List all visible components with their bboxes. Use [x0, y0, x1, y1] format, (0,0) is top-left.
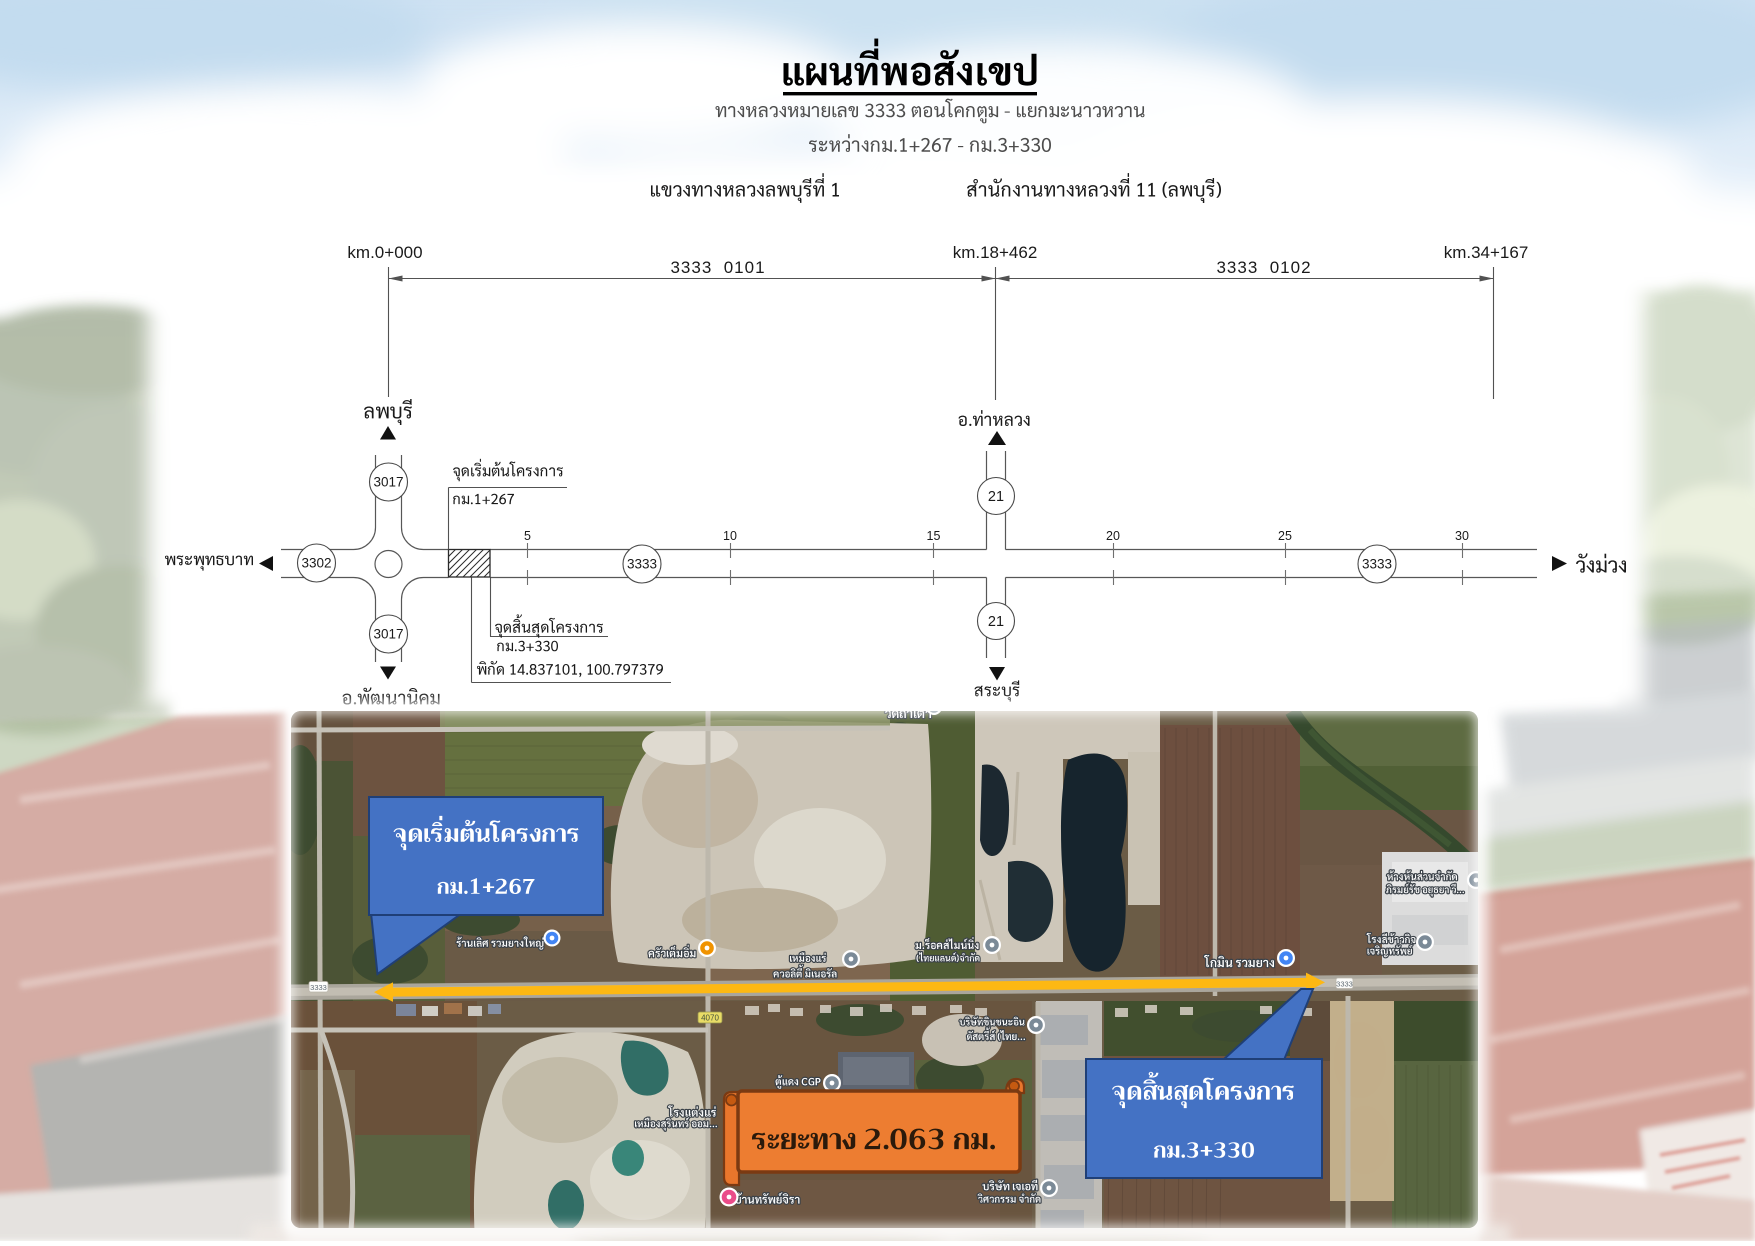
- svg-text:21: 21: [988, 614, 1004, 630]
- svg-text:5: 5: [524, 529, 531, 543]
- svg-text:3333 0102: 3333 0102: [1216, 258, 1311, 277]
- svg-text:3333: 3333: [310, 983, 327, 992]
- svg-text:3302: 3302: [301, 556, 331, 571]
- svg-text:km.0+000: km.0+000: [347, 243, 422, 262]
- svg-text:15: 15: [927, 529, 941, 543]
- svg-text:30: 30: [1455, 529, 1469, 543]
- svg-text:3333 0101: 3333 0101: [670, 258, 765, 277]
- svg-text:3017: 3017: [373, 475, 403, 490]
- svg-text:3017: 3017: [373, 627, 403, 642]
- svg-text:21: 21: [988, 489, 1004, 505]
- svg-text:10: 10: [723, 529, 737, 543]
- svg-text:3333: 3333: [1336, 979, 1353, 988]
- svg-text:4070: 4070: [701, 1014, 719, 1023]
- svg-text:20: 20: [1106, 529, 1120, 543]
- svg-text:3333: 3333: [1362, 557, 1392, 572]
- svg-text:25: 25: [1278, 529, 1292, 543]
- svg-text:km.34+167: km.34+167: [1444, 243, 1529, 262]
- svg-text:3333: 3333: [627, 557, 657, 572]
- svg-text:km.18+462: km.18+462: [953, 243, 1038, 262]
